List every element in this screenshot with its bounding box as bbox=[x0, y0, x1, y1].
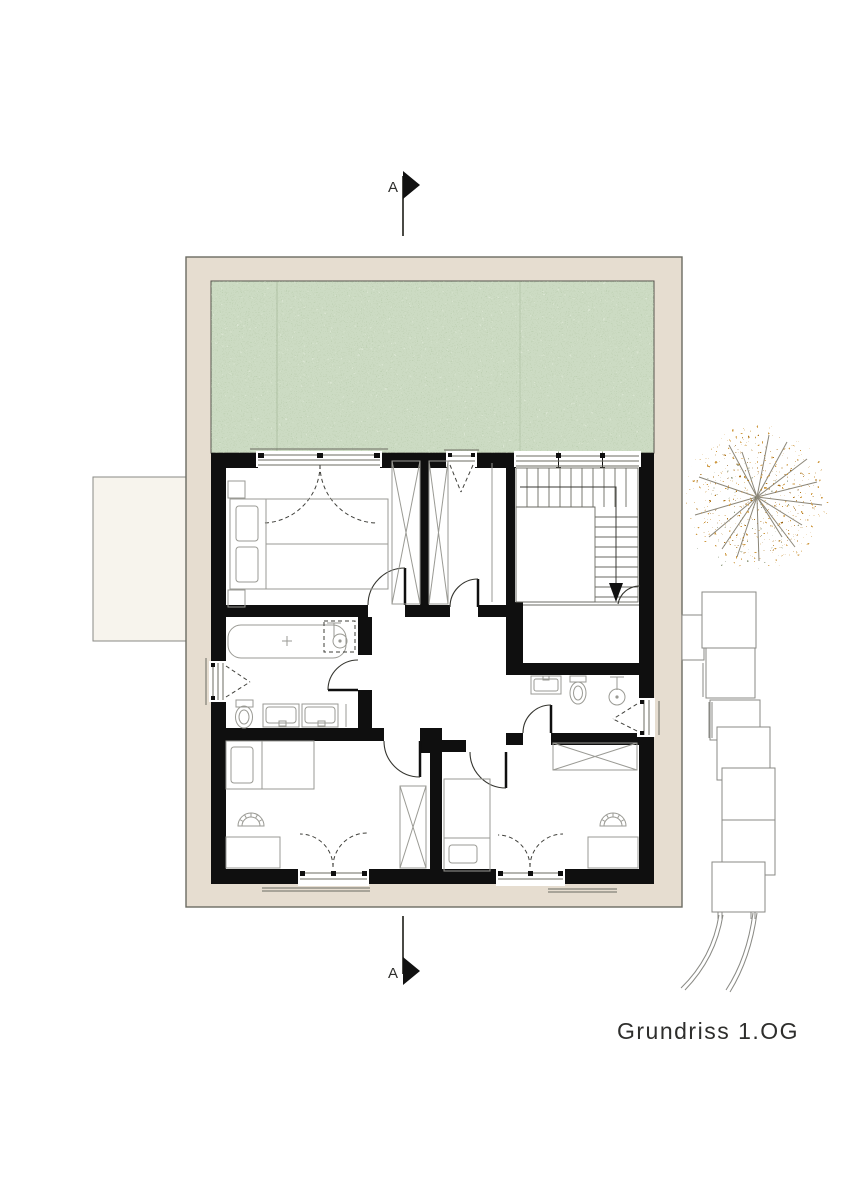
floor-plan-page: A bbox=[0, 0, 848, 1200]
green-roof bbox=[211, 281, 654, 453]
section-arrow-icon bbox=[403, 171, 420, 199]
section-label-bottom: A bbox=[388, 965, 398, 982]
section-marker-top: A bbox=[388, 171, 420, 236]
section-label-top: A bbox=[388, 179, 398, 196]
floor-plan-drawing: A bbox=[0, 0, 848, 1200]
neighbor-terraces bbox=[681, 592, 775, 992]
section-arrow-icon bbox=[403, 957, 420, 985]
tree bbox=[685, 425, 829, 571]
windows-stair bbox=[514, 451, 641, 467]
drawing-title: Grundriss 1.OG bbox=[617, 1018, 799, 1044]
neighbor-balcony-outline bbox=[93, 477, 186, 641]
section-marker-bottom: A bbox=[388, 916, 420, 985]
